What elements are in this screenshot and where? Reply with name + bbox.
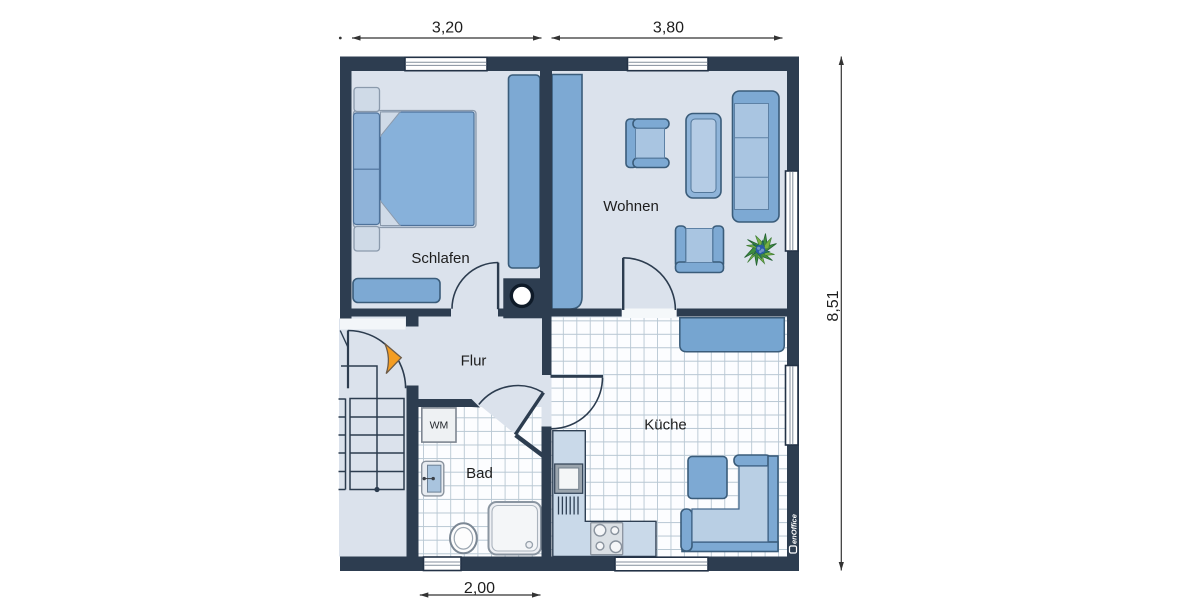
svg-text:2,00: 2,00 [464,580,495,597]
svg-text:3,80: 3,80 [653,20,684,37]
svg-text:Bad: Bad [466,465,493,482]
svg-text:WM: WM [430,420,449,432]
svg-text:Wohnen: Wohnen [603,198,659,215]
svg-text:enOffice: enOffice [790,514,799,544]
svg-text:Schlafen: Schlafen [411,250,469,267]
svg-text:Küche: Küche [644,416,687,433]
svg-text:8,51: 8,51 [825,290,842,321]
svg-text:3,20: 3,20 [432,20,463,37]
svg-text:Flur: Flur [461,352,487,369]
